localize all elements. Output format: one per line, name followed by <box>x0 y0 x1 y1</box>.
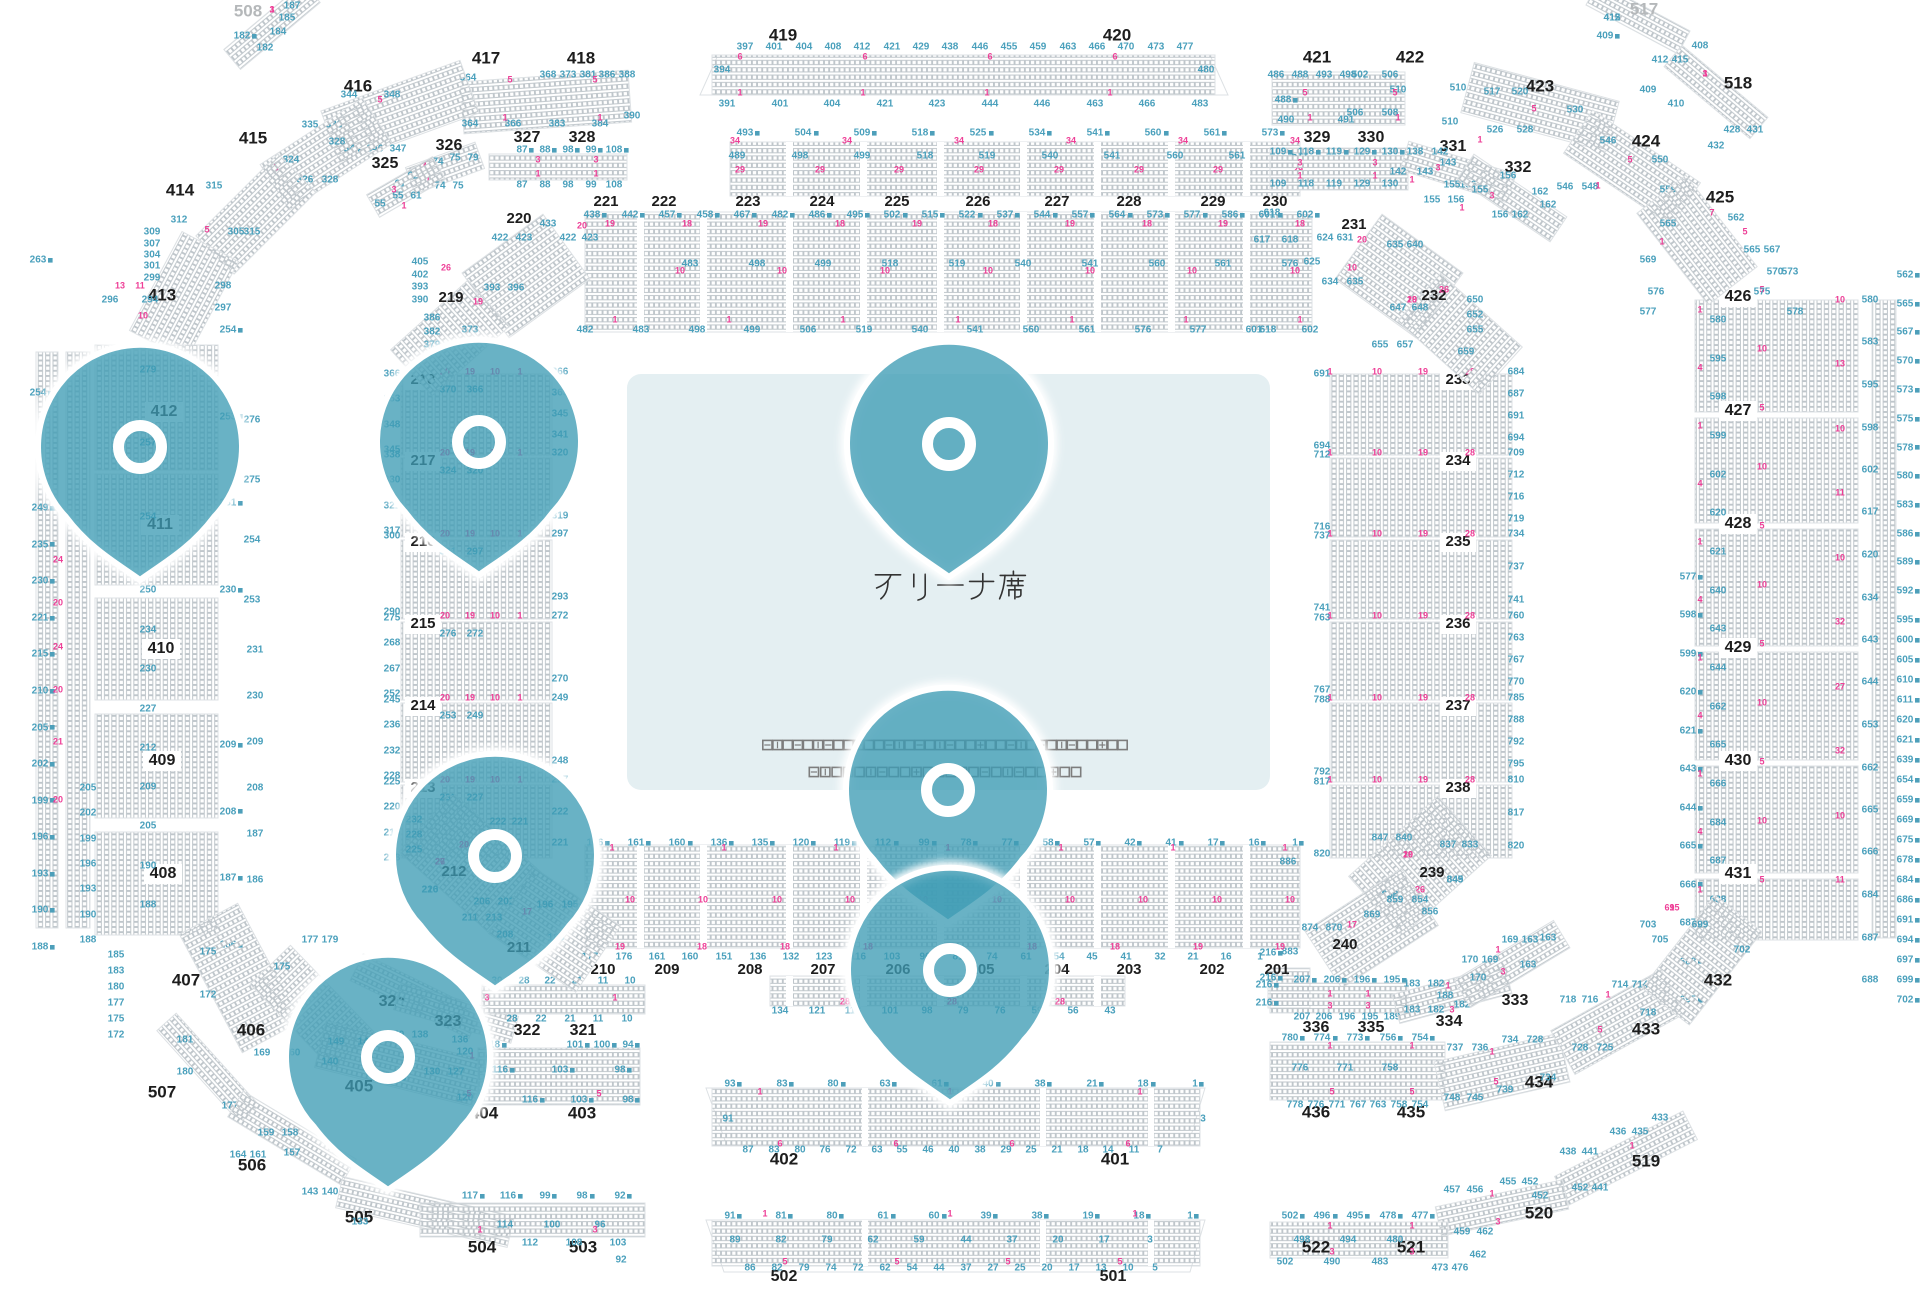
svg-text:1: 1 <box>597 112 602 122</box>
svg-text:3: 3 <box>484 992 489 1002</box>
svg-text:498: 498 <box>1294 1235 1311 1246</box>
svg-text:602: 602 <box>1862 465 1879 476</box>
svg-text:240: 240 <box>1332 936 1357 953</box>
svg-text:79: 79 <box>798 1263 810 1274</box>
svg-text:697: 697 <box>1897 955 1914 966</box>
svg-text:54: 54 <box>906 1263 918 1274</box>
svg-text:297: 297 <box>552 529 569 540</box>
svg-text:221: 221 <box>32 613 49 624</box>
svg-text:46: 46 <box>922 1145 934 1156</box>
svg-text:854: 854 <box>1412 895 1429 906</box>
svg-text:100: 100 <box>544 1220 561 1231</box>
svg-text:719: 719 <box>1508 514 1525 525</box>
svg-text:595: 595 <box>1897 615 1914 626</box>
svg-text:417: 417 <box>472 48 500 67</box>
svg-text:10: 10 <box>1212 894 1222 904</box>
svg-text:544: 544 <box>1034 210 1051 221</box>
svg-text:222: 222 <box>651 193 676 210</box>
svg-text:675: 675 <box>1897 835 1914 846</box>
svg-text:18: 18 <box>1110 941 1120 951</box>
svg-text:383: 383 <box>549 119 566 130</box>
svg-text:215: 215 <box>32 649 49 660</box>
svg-text:580: 580 <box>1710 315 1727 326</box>
svg-text:562: 562 <box>1897 270 1914 281</box>
svg-text:506: 506 <box>1382 70 1399 81</box>
svg-text:160: 160 <box>669 838 686 849</box>
svg-text:103: 103 <box>610 1238 627 1249</box>
svg-text:3: 3 <box>1147 1235 1153 1246</box>
svg-text:1: 1 <box>1292 838 1298 849</box>
svg-text:870: 870 <box>1326 923 1343 934</box>
svg-text:518: 518 <box>912 128 929 139</box>
svg-text:644: 644 <box>1680 803 1697 814</box>
svg-text:19: 19 <box>1065 218 1075 228</box>
svg-text:494: 494 <box>1340 1235 1357 1246</box>
svg-text:156: 156 <box>1500 171 1517 182</box>
svg-text:315: 315 <box>244 227 261 238</box>
svg-text:34: 34 <box>1290 135 1300 145</box>
svg-text:6: 6 <box>737 51 742 61</box>
svg-text:45: 45 <box>1086 952 1098 963</box>
svg-text:467: 467 <box>734 210 751 221</box>
svg-text:565: 565 <box>1897 299 1914 310</box>
svg-text:330: 330 <box>1358 129 1385 146</box>
svg-text:20: 20 <box>53 794 63 804</box>
svg-text:219: 219 <box>438 289 463 306</box>
svg-text:403: 403 <box>568 1103 596 1122</box>
svg-text:5: 5 <box>507 74 512 84</box>
svg-text:620: 620 <box>1680 687 1697 698</box>
svg-text:10: 10 <box>138 310 148 320</box>
svg-text:29: 29 <box>974 164 984 174</box>
svg-text:10: 10 <box>777 265 787 275</box>
svg-text:348: 348 <box>384 90 401 101</box>
svg-text:1: 1 <box>1327 988 1332 998</box>
svg-text:5: 5 <box>1759 756 1764 766</box>
svg-text:3: 3 <box>1329 1246 1334 1256</box>
svg-text:88: 88 <box>539 180 551 191</box>
svg-text:737: 737 <box>1447 1043 1464 1054</box>
svg-text:188: 188 <box>32 942 49 953</box>
svg-text:1: 1 <box>517 610 522 620</box>
svg-text:429: 429 <box>913 42 930 53</box>
svg-text:5: 5 <box>1531 103 1536 113</box>
svg-text:195: 195 <box>1362 1012 1379 1023</box>
svg-text:3: 3 <box>1327 1000 1332 1010</box>
svg-text:10: 10 <box>1372 366 1382 376</box>
svg-text:617: 617 <box>1862 507 1879 518</box>
svg-text:754: 754 <box>1412 1100 1429 1111</box>
svg-text:394: 394 <box>714 65 731 76</box>
svg-text:17: 17 <box>1098 1235 1110 1246</box>
svg-text:61: 61 <box>410 191 422 202</box>
svg-text:37: 37 <box>1006 1235 1018 1246</box>
svg-text:1: 1 <box>1327 1220 1332 1230</box>
svg-text:114: 114 <box>497 1220 514 1231</box>
svg-text:561: 561 <box>1229 151 1246 162</box>
svg-text:188: 188 <box>80 935 97 946</box>
svg-text:687: 687 <box>1710 856 1727 867</box>
svg-text:833: 833 <box>1462 840 1479 851</box>
svg-text:1: 1 <box>721 842 726 852</box>
svg-text:245: 245 <box>384 695 401 706</box>
svg-text:27: 27 <box>1835 681 1845 691</box>
svg-text:182: 182 <box>1428 1005 1445 1016</box>
svg-text:716: 716 <box>1582 995 1599 1006</box>
svg-text:3: 3 <box>535 154 540 164</box>
svg-text:561: 561 <box>1215 259 1232 270</box>
svg-text:5: 5 <box>1759 638 1764 648</box>
svg-text:186: 186 <box>247 875 264 886</box>
svg-text:459: 459 <box>1454 1227 1471 1238</box>
svg-text:196: 196 <box>1339 1012 1356 1023</box>
svg-text:29: 29 <box>894 164 904 174</box>
svg-text:684: 684 <box>1897 875 1914 886</box>
svg-text:116: 116 <box>522 1095 539 1106</box>
svg-text:1: 1 <box>1489 1188 1494 1198</box>
svg-text:718: 718 <box>1560 995 1577 1006</box>
svg-text:595: 595 <box>1710 354 1727 365</box>
svg-text:433: 433 <box>540 219 557 230</box>
svg-text:19: 19 <box>912 218 922 228</box>
svg-text:610: 610 <box>1897 675 1914 686</box>
svg-text:19: 19 <box>758 218 768 228</box>
svg-text:328: 328 <box>329 137 346 148</box>
svg-text:32: 32 <box>1154 952 1166 963</box>
svg-text:631: 631 <box>1337 233 1354 244</box>
svg-text:34: 34 <box>1066 135 1076 145</box>
svg-text:611: 611 <box>1897 695 1914 706</box>
svg-text:26: 26 <box>1439 284 1449 294</box>
svg-text:119: 119 <box>1326 147 1343 158</box>
svg-text:20: 20 <box>53 684 63 694</box>
svg-text:561: 561 <box>1204 128 1221 139</box>
svg-text:1: 1 <box>726 314 731 324</box>
svg-text:28: 28 <box>1465 447 1475 457</box>
svg-text:502: 502 <box>1282 1211 1299 1222</box>
svg-text:621: 621 <box>1897 735 1914 746</box>
svg-text:10: 10 <box>1122 1263 1134 1274</box>
svg-text:3: 3 <box>1435 162 1440 172</box>
svg-text:112: 112 <box>522 1238 539 1249</box>
svg-text:737: 737 <box>1508 562 1525 573</box>
svg-text:518: 518 <box>917 151 934 162</box>
svg-text:5: 5 <box>1117 1256 1122 1266</box>
svg-text:32: 32 <box>1835 745 1845 755</box>
svg-text:422: 422 <box>560 233 577 244</box>
svg-text:263: 263 <box>30 255 47 266</box>
svg-text:795: 795 <box>1508 759 1525 770</box>
svg-text:640: 640 <box>1710 586 1727 597</box>
svg-text:1: 1 <box>1365 988 1370 998</box>
svg-text:109: 109 <box>1270 147 1287 158</box>
svg-text:1: 1 <box>593 168 598 178</box>
svg-text:402: 402 <box>412 270 429 281</box>
svg-text:75: 75 <box>452 181 464 192</box>
svg-text:1: 1 <box>1327 610 1332 620</box>
svg-text:778: 778 <box>1287 1100 1304 1111</box>
svg-text:414: 414 <box>166 180 195 199</box>
svg-text:452: 452 <box>1522 1177 1539 1188</box>
svg-text:470: 470 <box>1118 42 1135 53</box>
svg-text:294: 294 <box>142 295 159 306</box>
svg-text:736: 736 <box>1472 1043 1489 1054</box>
svg-text:268: 268 <box>384 638 401 649</box>
svg-text:253: 253 <box>244 595 261 606</box>
svg-text:129: 129 <box>1354 179 1371 190</box>
svg-text:444: 444 <box>982 99 999 110</box>
svg-text:712: 712 <box>1508 470 1525 481</box>
svg-text:116: 116 <box>500 1191 517 1202</box>
svg-text:1: 1 <box>1697 536 1702 546</box>
svg-text:206: 206 <box>1324 975 1341 986</box>
svg-text:11: 11 <box>135 280 145 290</box>
svg-text:267: 267 <box>384 664 401 675</box>
svg-text:655: 655 <box>1372 340 1389 351</box>
svg-text:3: 3 <box>1495 1216 1500 1226</box>
svg-text:669: 669 <box>1897 815 1914 826</box>
svg-text:423: 423 <box>929 99 946 110</box>
svg-text:230: 230 <box>32 576 49 587</box>
svg-text:18: 18 <box>988 218 998 228</box>
svg-text:129: 129 <box>1354 147 1371 158</box>
svg-text:874: 874 <box>1302 923 1319 934</box>
svg-text:525: 525 <box>970 128 987 139</box>
svg-text:19: 19 <box>1418 774 1428 784</box>
svg-text:438: 438 <box>1560 1147 1577 1158</box>
svg-text:810: 810 <box>1508 775 1525 786</box>
svg-text:10: 10 <box>698 894 708 904</box>
svg-text:483: 483 <box>1192 99 1209 110</box>
svg-text:43: 43 <box>1104 1006 1116 1017</box>
svg-text:103: 103 <box>571 1095 588 1106</box>
svg-text:231: 231 <box>247 645 264 656</box>
svg-text:208: 208 <box>247 783 264 794</box>
svg-text:653: 653 <box>1862 720 1879 731</box>
svg-text:309: 309 <box>144 227 161 238</box>
svg-text:429: 429 <box>1725 639 1752 656</box>
svg-text:404: 404 <box>796 42 813 53</box>
svg-text:10: 10 <box>1757 579 1767 589</box>
svg-text:409: 409 <box>149 752 176 769</box>
svg-text:504: 504 <box>795 128 812 139</box>
svg-text:476: 476 <box>1452 1263 1469 1274</box>
svg-text:1: 1 <box>1697 304 1702 314</box>
svg-text:207: 207 <box>810 961 835 978</box>
svg-text:415: 415 <box>1604 13 1621 24</box>
svg-text:230: 230 <box>220 585 237 596</box>
svg-text:5: 5 <box>894 1256 899 1266</box>
svg-text:74: 74 <box>825 1263 837 1274</box>
svg-text:98: 98 <box>576 1191 588 1202</box>
svg-text:1: 1 <box>1372 170 1377 180</box>
svg-text:550: 550 <box>1652 155 1669 166</box>
svg-text:5: 5 <box>782 1256 787 1266</box>
svg-text:1: 1 <box>1187 1211 1193 1222</box>
svg-text:423: 423 <box>1526 76 1554 95</box>
svg-text:599: 599 <box>1710 431 1727 442</box>
svg-text:473: 473 <box>1432 1263 1449 1274</box>
svg-text:452: 452 <box>1572 1183 1589 1194</box>
svg-text:190: 190 <box>32 905 49 916</box>
svg-text:1: 1 <box>1183 314 1188 324</box>
svg-text:225: 225 <box>384 777 401 788</box>
svg-text:230: 230 <box>247 691 264 702</box>
svg-text:560: 560 <box>1149 259 1166 270</box>
svg-text:1: 1 <box>1595 180 1600 190</box>
svg-text:703: 703 <box>1640 920 1657 931</box>
svg-text:10: 10 <box>1835 552 1845 562</box>
svg-text:373: 373 <box>560 70 577 81</box>
svg-text:415: 415 <box>1672 55 1689 66</box>
svg-text:3: 3 <box>1489 190 1494 200</box>
svg-text:1: 1 <box>1495 944 1500 954</box>
svg-text:10: 10 <box>621 1014 633 1025</box>
svg-text:662: 662 <box>1710 702 1727 713</box>
svg-text:578: 578 <box>1897 443 1914 454</box>
svg-text:10: 10 <box>772 894 782 904</box>
svg-text:577: 577 <box>1680 572 1697 583</box>
svg-text:13: 13 <box>1835 358 1845 368</box>
svg-text:347: 347 <box>390 144 407 155</box>
svg-text:699: 699 <box>1692 920 1709 931</box>
svg-text:5: 5 <box>596 1088 601 1098</box>
svg-text:4: 4 <box>1697 710 1702 720</box>
svg-text:20: 20 <box>440 692 450 702</box>
svg-text:299: 299 <box>144 273 161 284</box>
svg-text:519: 519 <box>949 259 966 270</box>
svg-text:541: 541 <box>1087 128 1104 139</box>
svg-text:728: 728 <box>1527 1035 1544 1046</box>
svg-text:433: 433 <box>1632 1019 1660 1038</box>
svg-text:28: 28 <box>1465 528 1475 538</box>
svg-text:771: 771 <box>1337 1063 1354 1074</box>
svg-text:209: 209 <box>220 740 237 751</box>
svg-text:488: 488 <box>1275 95 1292 106</box>
svg-text:10: 10 <box>490 610 500 620</box>
svg-text:530: 530 <box>1567 105 1584 116</box>
svg-text:195: 195 <box>1384 975 1401 986</box>
svg-text:561: 561 <box>1079 325 1096 336</box>
svg-text:170: 170 <box>1470 973 1487 984</box>
svg-text:301: 301 <box>144 261 161 272</box>
svg-text:322: 322 <box>514 1022 541 1039</box>
svg-text:184: 184 <box>270 27 287 38</box>
svg-text:21: 21 <box>1051 1145 1063 1156</box>
svg-text:368: 368 <box>540 70 557 81</box>
svg-text:493: 493 <box>1316 70 1333 81</box>
svg-text:118: 118 <box>1298 147 1315 158</box>
svg-text:19: 19 <box>1403 849 1413 859</box>
svg-text:540: 540 <box>912 325 929 336</box>
svg-text:344: 344 <box>341 90 358 101</box>
svg-text:709: 709 <box>1508 448 1525 459</box>
svg-text:29: 29 <box>1213 164 1223 174</box>
svg-text:1: 1 <box>1132 1208 1137 1218</box>
svg-text:87: 87 <box>742 1145 754 1156</box>
svg-text:456: 456 <box>1467 1185 1484 1196</box>
svg-text:1: 1 <box>1327 366 1332 376</box>
svg-text:489: 489 <box>729 151 746 162</box>
svg-text:7: 7 <box>1709 207 1714 217</box>
svg-text:621: 621 <box>1710 547 1727 558</box>
svg-text:80: 80 <box>794 1145 806 1156</box>
svg-text:209: 209 <box>654 961 679 978</box>
svg-text:499: 499 <box>744 325 761 336</box>
svg-text:19: 19 <box>1193 941 1203 951</box>
svg-text:138: 138 <box>1407 147 1424 158</box>
svg-text:5: 5 <box>1005 1256 1010 1266</box>
svg-text:560: 560 <box>1167 151 1184 162</box>
svg-text:602: 602 <box>1302 325 1319 336</box>
svg-text:18: 18 <box>835 218 845 228</box>
svg-text:19: 19 <box>1082 1211 1094 1222</box>
svg-text:647: 647 <box>1390 303 1407 314</box>
svg-text:227: 227 <box>140 704 157 715</box>
svg-text:418: 418 <box>567 48 595 67</box>
svg-text:498: 498 <box>689 325 706 336</box>
svg-text:620: 620 <box>1897 715 1914 726</box>
svg-text:20: 20 <box>1041 1263 1053 1274</box>
svg-text:38: 38 <box>1034 1079 1046 1090</box>
svg-text:34: 34 <box>954 135 964 145</box>
svg-text:657: 657 <box>1397 340 1414 351</box>
svg-text:502: 502 <box>1352 70 1369 81</box>
svg-text:19: 19 <box>615 941 625 951</box>
svg-text:678: 678 <box>1897 855 1914 866</box>
svg-text:176: 176 <box>616 952 633 963</box>
svg-text:1: 1 <box>984 87 989 97</box>
svg-text:537: 537 <box>997 210 1014 221</box>
svg-text:1: 1 <box>833 842 838 852</box>
svg-text:275: 275 <box>244 475 261 486</box>
svg-text:180: 180 <box>108 982 125 993</box>
svg-text:502: 502 <box>884 210 901 221</box>
svg-text:190: 190 <box>140 861 157 872</box>
svg-text:734: 734 <box>1502 1035 1519 1046</box>
svg-text:1: 1 <box>1137 1086 1142 1096</box>
svg-text:573: 573 <box>1782 267 1799 278</box>
svg-text:567: 567 <box>1764 245 1781 256</box>
svg-text:13: 13 <box>1095 1263 1107 1274</box>
svg-text:498: 498 <box>749 259 766 270</box>
svg-text:407: 407 <box>172 970 200 989</box>
svg-text:315: 315 <box>206 181 223 192</box>
svg-text:163: 163 <box>1522 935 1539 946</box>
svg-text:625: 625 <box>1304 257 1321 268</box>
svg-text:57: 57 <box>1083 838 1095 849</box>
svg-text:10: 10 <box>625 894 635 904</box>
svg-text:5: 5 <box>1759 874 1764 884</box>
svg-text:473: 473 <box>1148 42 1165 53</box>
svg-text:10: 10 <box>1835 423 1845 433</box>
svg-text:441: 441 <box>1592 1183 1609 1194</box>
svg-text:519: 519 <box>979 151 996 162</box>
svg-text:164: 164 <box>230 1150 247 1161</box>
svg-text:1: 1 <box>1192 1079 1198 1090</box>
svg-text:196: 196 <box>80 859 97 870</box>
svg-text:272: 272 <box>552 611 569 622</box>
svg-text:458: 458 <box>697 210 714 221</box>
svg-text:162: 162 <box>1512 210 1529 221</box>
svg-text:10: 10 <box>1372 528 1382 538</box>
svg-text:386: 386 <box>599 70 616 81</box>
svg-text:441: 441 <box>1582 1147 1599 1158</box>
svg-text:38: 38 <box>1031 1211 1043 1222</box>
svg-text:617: 617 <box>1254 235 1271 246</box>
svg-text:161: 161 <box>649 952 666 963</box>
svg-text:763: 763 <box>1508 633 1525 644</box>
